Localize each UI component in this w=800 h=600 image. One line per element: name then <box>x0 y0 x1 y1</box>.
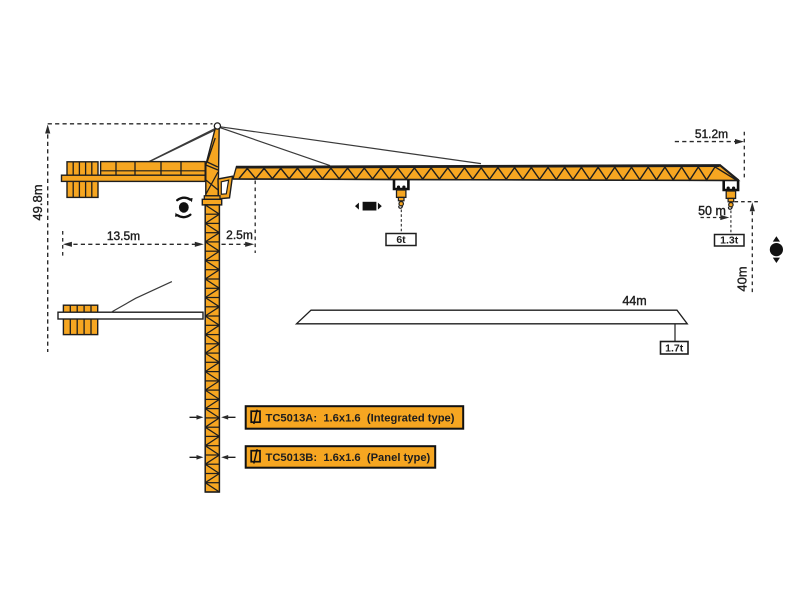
svg-text:49.8m: 49.8m <box>30 184 45 220</box>
svg-text:44m: 44m <box>622 294 646 308</box>
svg-text:TC5013A: 1.6x1.6 (Integrated: TC5013A: 1.6x1.6 (Integrated type) <box>266 413 455 425</box>
svg-text:TC5013B: 1.6x1.6 (Panel type: TC5013B: 1.6x1.6 (Panel type) <box>266 452 431 464</box>
svg-text:13.5m: 13.5m <box>107 229 140 243</box>
svg-text:6t: 6t <box>396 234 406 246</box>
svg-text:50 m: 50 m <box>698 204 726 218</box>
svg-text:40m: 40m <box>735 266 750 291</box>
svg-text:51.2m: 51.2m <box>695 127 728 141</box>
svg-text:1.7t: 1.7t <box>665 342 684 354</box>
svg-text:2.5m: 2.5m <box>226 228 253 242</box>
svg-text:1.3t: 1.3t <box>720 235 739 247</box>
